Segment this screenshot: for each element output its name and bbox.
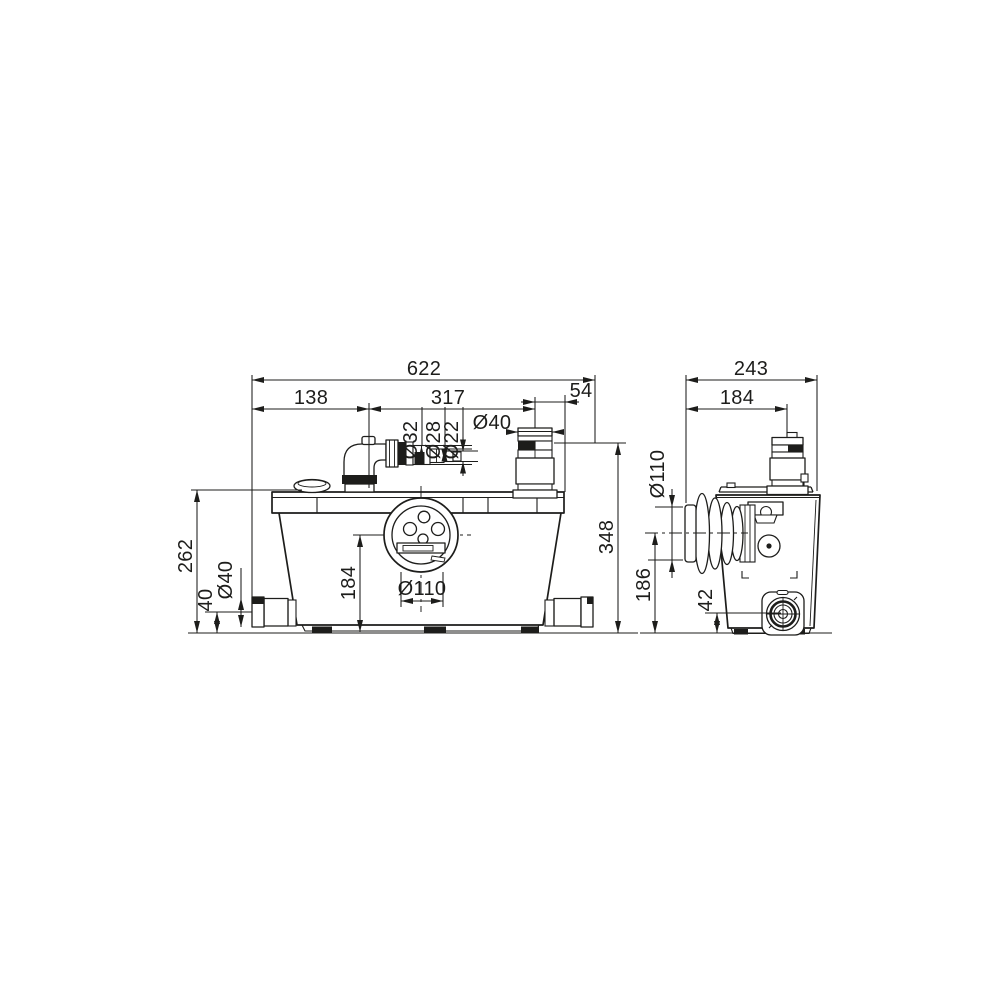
dim-label-total-depth: 243	[734, 358, 768, 380]
dim-label-outlet-to-edge: 54	[570, 380, 593, 402]
discharge-pipe	[513, 428, 557, 498]
dim-label-outlet-center-offset: 184	[720, 387, 754, 409]
bellows-inlet	[685, 494, 755, 574]
dim-label-total-height: 348	[596, 520, 618, 554]
discharge-elbow	[342, 437, 386, 493]
dim-label-side-inlet-dia: Ø40	[215, 561, 237, 600]
corner-marks	[742, 571, 797, 578]
dim-label-outlet-dia: Ø40	[473, 412, 512, 434]
dim-label-inlet-center-height: 184	[338, 566, 360, 600]
dim-label-total-width: 622	[407, 358, 441, 380]
side-inlet-connector-right	[545, 597, 593, 627]
technical-drawing: 622 138 317 54 Ø40 Ø32 Ø28 Ø22 262 40 Ø4…	[0, 0, 1000, 1000]
dim-label-adapter-dia-3: Ø22	[441, 421, 463, 460]
discharge-pipe-side	[767, 433, 808, 495]
page: 622 138 317 54 Ø40 Ø32 Ø28 Ø22 262 40 Ø4…	[0, 0, 1000, 1000]
dim-label-inlet-elbow-offset: 138	[294, 387, 328, 409]
dim-label-rear-inlet-center-height: 186	[633, 568, 655, 602]
dim-label-body-height: 262	[175, 539, 197, 573]
dim-label-adapter-dia-1: Ø32	[400, 421, 422, 460]
dim-label-inlet-dia: Ø110	[398, 578, 447, 600]
side-inlet-connector-left	[252, 597, 296, 627]
dim-label-rear-inlet-dia: Ø110	[647, 450, 669, 499]
dim-label-side-inlet-height: 40	[195, 589, 217, 612]
vent-knob	[758, 535, 780, 557]
lid-cap	[294, 480, 330, 493]
dim-label-side-outlet-center-height: 42	[695, 589, 717, 612]
dim-label-elbow-to-outlet: 317	[431, 387, 465, 409]
